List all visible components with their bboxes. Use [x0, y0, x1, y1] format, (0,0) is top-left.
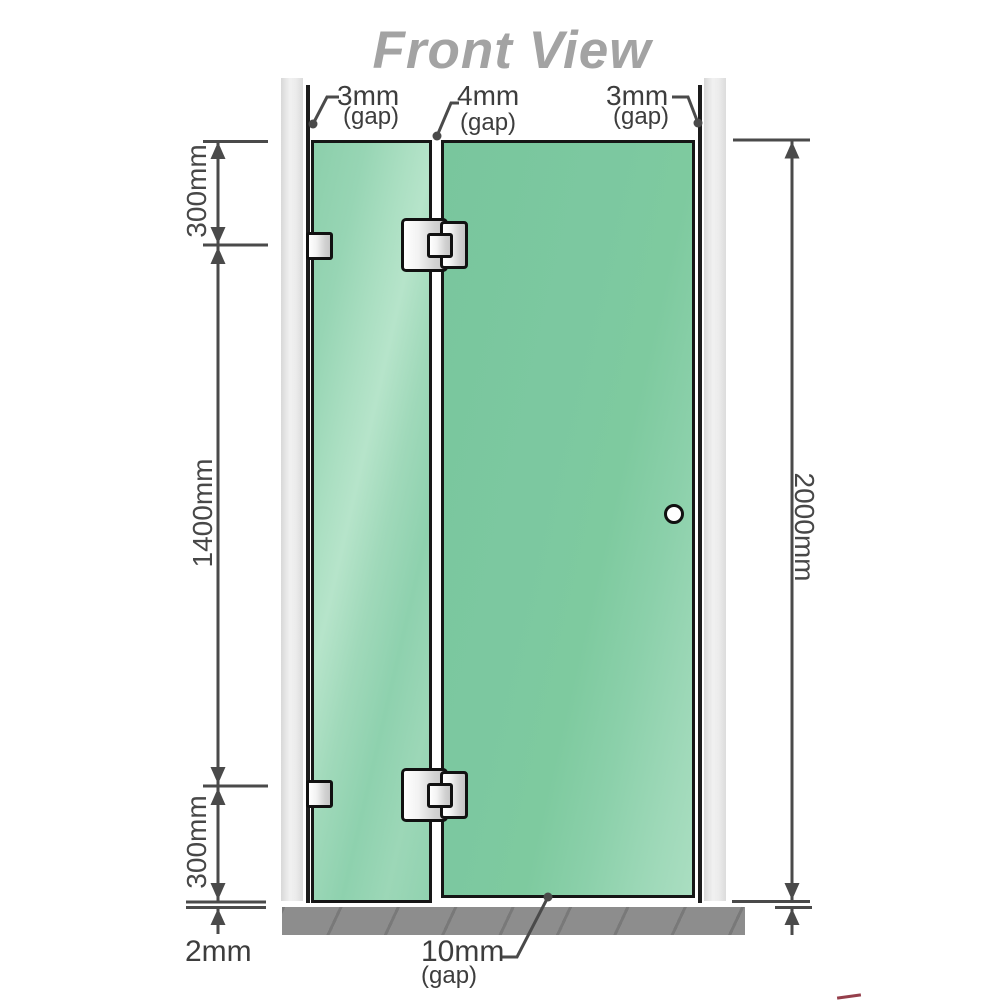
wall-edge-line-right	[698, 85, 702, 903]
wall-bracket-bottom	[306, 780, 333, 808]
gap-label-bottom-suffix: (gap)	[421, 964, 477, 988]
floor-base	[282, 907, 745, 935]
hinge-top-tab	[427, 233, 453, 258]
watermark-fragment	[837, 993, 861, 999]
diagram-title: Front View	[12, 20, 1000, 81]
dimension-middle-label: 1400mm	[189, 459, 217, 568]
dimension-top-label: 300mm	[183, 144, 211, 237]
gap-label-middle-value: 4mm	[457, 82, 519, 110]
glass-panel-door	[441, 140, 695, 898]
door-handle-knob	[664, 504, 684, 524]
wall-channel-right	[704, 78, 726, 901]
hinge-bottom-tab	[427, 783, 453, 808]
dimension-bottom-label: 300mm	[183, 795, 211, 888]
gap-label-left-suffix: (gap)	[343, 105, 399, 129]
dimension-overall-label: 2000mm	[790, 473, 818, 582]
wall-channel-left	[281, 78, 303, 901]
front-view-diagram: Front View	[0, 0, 1000, 1000]
gap-label-right-suffix: (gap)	[613, 105, 669, 129]
floor-gap-label: 2mm	[185, 937, 252, 967]
gap-label-middle-suffix: (gap)	[460, 111, 516, 135]
wall-bracket-top	[306, 232, 333, 260]
